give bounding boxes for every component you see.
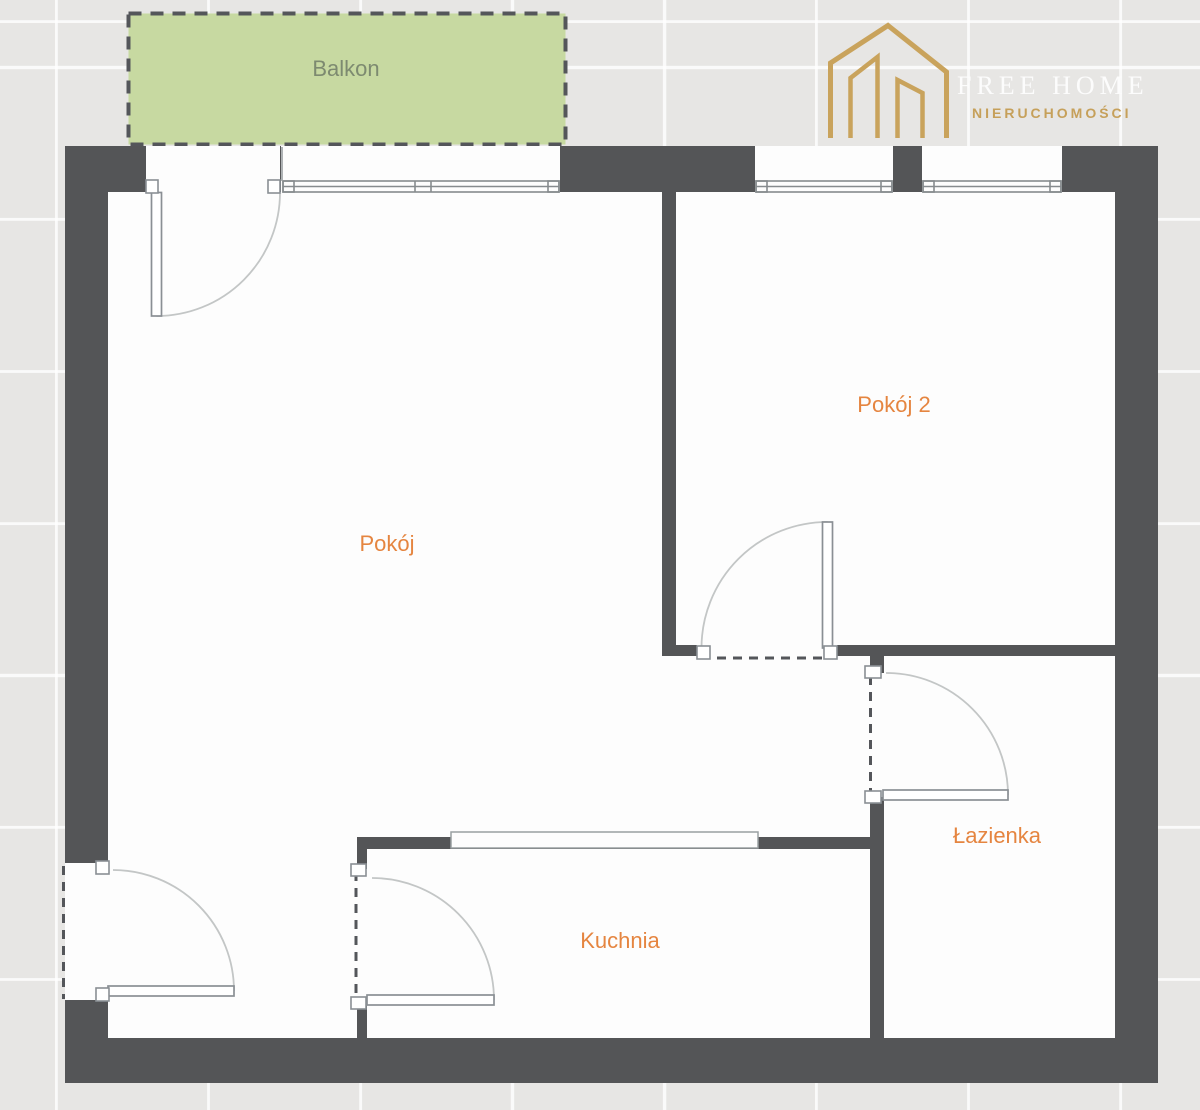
opening-balcony-door [146, 146, 280, 192]
opening-bathroom-door [870, 673, 884, 797]
room-label-balkon: Balkon [312, 56, 379, 82]
opening-entrance-door [65, 863, 108, 1000]
opening-kitchen-door [357, 869, 367, 1000]
room-label-lazienka: Łazienka [953, 823, 1041, 849]
pokoj2-door-leaf [823, 522, 833, 648]
room-label-kuchnia: Kuchnia [580, 928, 660, 954]
opening-window-a [755, 146, 893, 192]
wall-bottom [65, 1038, 1158, 1083]
floor-plan-page: Balkon Pokój Pokój 2 Łazienka Kuchnia FR… [0, 0, 1200, 1110]
entrance-door-leaf [108, 986, 234, 996]
opening-pokoj2-door [697, 645, 837, 656]
bathroom-door-leaf [883, 790, 1008, 800]
opening-window-b [922, 146, 1062, 192]
opening-balcony-window [281, 146, 560, 192]
balcony-door-leaf [152, 193, 162, 317]
wall-right [1115, 146, 1158, 1083]
kitchen-door-leaf [367, 995, 494, 1005]
wall-pokoj-pokoj2-divider [662, 192, 676, 656]
room-label-pokoj2: Pokój 2 [857, 392, 930, 418]
kitchen-pass-through [451, 832, 758, 848]
room-label-pokoj: Pokój [359, 531, 414, 557]
